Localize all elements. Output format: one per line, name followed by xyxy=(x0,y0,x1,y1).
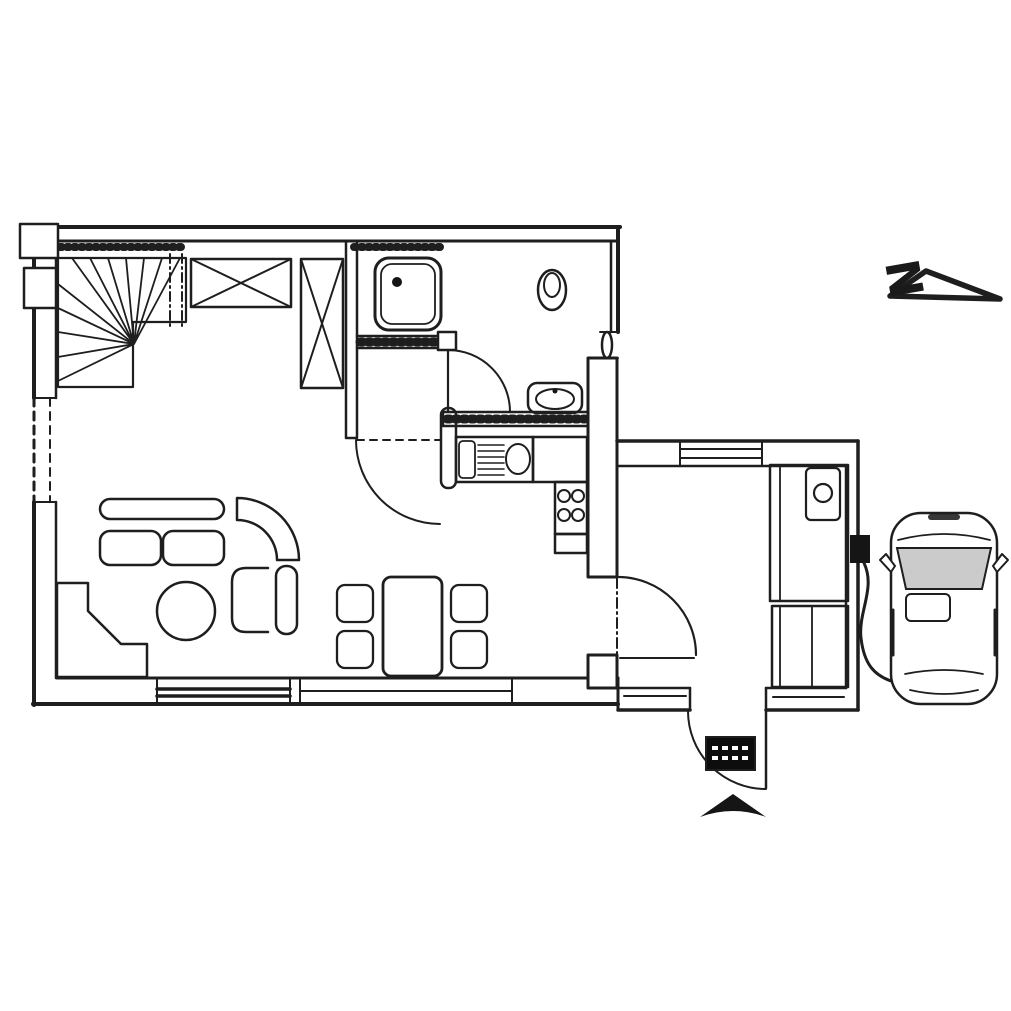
closet-x-diagonals xyxy=(191,259,291,307)
floorplan-scan-page: N xyxy=(0,0,1011,1011)
car-sunroof xyxy=(906,594,950,621)
kitchen-sink xyxy=(456,437,533,482)
winder-staircase xyxy=(58,254,186,387)
drainboard-lines xyxy=(478,445,504,475)
two-door-cupboard xyxy=(772,606,848,687)
wall-stub xyxy=(588,655,617,688)
window-jambs xyxy=(34,398,56,502)
stair-treads xyxy=(58,258,180,381)
armchair-seat xyxy=(232,568,268,632)
burner xyxy=(572,509,584,521)
cooktop-body xyxy=(555,482,587,534)
shower xyxy=(375,258,441,330)
dining-table xyxy=(383,577,442,676)
coffee-table xyxy=(157,582,215,640)
dining-chair xyxy=(337,631,373,668)
living-room xyxy=(57,498,299,677)
wall-pilaster xyxy=(24,268,56,308)
wallbox xyxy=(850,535,870,563)
door-swing-arc xyxy=(448,350,510,412)
north-arrow: N xyxy=(874,255,1000,302)
floorplan-drawing: N xyxy=(0,0,1011,1011)
window-bottom-2 xyxy=(300,678,512,704)
doormat xyxy=(706,737,755,770)
closet-x-diagonals xyxy=(301,259,343,388)
cooktop xyxy=(555,482,587,534)
dining-chair xyxy=(451,631,487,668)
charging-cable xyxy=(861,563,891,681)
sink-side xyxy=(459,441,475,478)
cabinet-outline xyxy=(770,465,848,601)
dining-chair xyxy=(337,585,373,622)
armchair-back xyxy=(276,566,297,634)
hall-door xyxy=(617,577,696,655)
toilet xyxy=(538,270,566,310)
sofa-seat xyxy=(163,531,224,565)
shower-tray-inner xyxy=(381,264,435,324)
kitchen xyxy=(356,408,587,553)
window-hall-bottom xyxy=(624,696,844,697)
toilet-bowl xyxy=(538,270,566,310)
counter-low xyxy=(555,534,587,553)
washbasin xyxy=(528,383,582,413)
window-bath xyxy=(602,332,612,358)
built-in-closets xyxy=(191,259,343,388)
kitchen-door xyxy=(356,440,440,524)
car-windshield xyxy=(897,548,991,589)
burner xyxy=(558,509,570,521)
sink-bowl xyxy=(506,444,530,474)
kitchen-counter xyxy=(533,437,587,482)
sofa-seat xyxy=(100,531,161,565)
burner xyxy=(558,490,570,502)
chimney-block xyxy=(20,224,58,258)
sofa xyxy=(100,499,224,565)
toilet-bowl-inner xyxy=(544,273,560,297)
tall-cabinet xyxy=(770,465,848,601)
dining-area xyxy=(337,577,487,676)
burner xyxy=(572,490,584,502)
bathroom-door xyxy=(438,332,510,412)
entry-hall xyxy=(617,465,848,817)
corner-fireplace xyxy=(57,583,147,677)
car-top-view xyxy=(880,513,1008,704)
window-bottom-1 xyxy=(157,689,290,696)
cupboard-outline xyxy=(772,606,848,687)
sofa-back xyxy=(100,499,224,519)
window-jambs xyxy=(157,678,290,704)
door-jambs xyxy=(690,688,766,710)
doormat-body xyxy=(706,737,755,770)
walls xyxy=(20,224,858,710)
dining-chair xyxy=(451,585,487,622)
wall-kitchen-hall xyxy=(588,358,617,577)
washbasin-tap xyxy=(553,389,558,394)
corner-sofa-element xyxy=(237,498,299,560)
door-swing-arc xyxy=(618,577,696,655)
appliance xyxy=(806,468,840,520)
entrance-arrow xyxy=(700,794,766,817)
door-swing-arc xyxy=(356,440,440,524)
wall-interior xyxy=(346,241,357,438)
door-post xyxy=(438,332,456,350)
window-hall-top xyxy=(680,441,762,466)
shower-drain xyxy=(392,277,402,287)
shower-tray xyxy=(375,258,441,330)
car-front-grille xyxy=(928,514,960,520)
armchair xyxy=(232,566,297,634)
cupboard-divider xyxy=(780,606,812,687)
appliance-dial xyxy=(814,484,832,502)
